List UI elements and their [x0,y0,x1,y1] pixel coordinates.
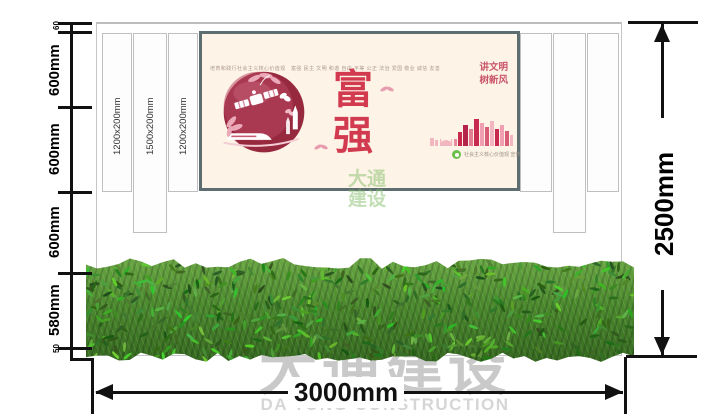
poster-caption: 社会主义核心价值观 宣传 [464,151,520,158]
panel-slat-left-3: 1200x200mm [168,33,198,192]
arrowhead-left-icon [95,384,113,400]
panel-slat-left-2: 1500x200mm [133,33,167,233]
leaf-decoration-icon [380,84,394,94]
dim-tick [58,191,92,194]
signage-wall-elevation-drawing: 1200x200mm 1500x200mm 1200x200mm 培育和践行社会… [0,0,720,420]
watermark-small-line1: 大通 [344,170,390,190]
panel-slat-right-2 [553,33,586,233]
dim-extension [91,358,94,414]
slogan-line-2: 树新风 [479,74,508,87]
dim-label-3000: 3000mm [288,377,404,408]
dim-tick [58,347,92,350]
slat-size-label: 1500x200mm [145,70,156,182]
dim-label-2500: 2500mm [649,118,680,290]
dim-label-50: 50 [52,342,61,356]
poster-side-slogan: 讲文明 树新风 [479,61,508,87]
dim-label-600-3: 600mm [46,195,63,270]
panel-slat-right-1 [520,33,552,192]
arrowhead-down-icon [654,337,670,355]
panel-slat-left-1: 1200x200mm [102,33,132,192]
watermark-small-line2: 建设 [344,190,390,210]
dim-extension [624,357,627,414]
dim-tick [58,106,92,109]
dim-tick [58,272,92,275]
hedge-photo [86,258,634,362]
watermark-small: 大通 建设 [344,170,390,210]
poster-board: 培育和践行社会主义核心价值观 富强 民主 文明 和谐 自由 平等 公正 法治 爱… [199,31,520,191]
slogan-line-1: 讲文明 [479,61,508,74]
dim-tick [58,31,92,34]
slat-size-label: 1200x200mm [112,70,123,182]
dim-label-600-1: 600mm [46,36,63,104]
poster-main-word: 富强 [328,68,370,180]
panel-slat-right-3 [587,33,619,192]
poster-caption-row: 社会主义核心价值观 宣传 [452,150,520,159]
leaf-decoration-icon [314,142,328,152]
city-skyline-illustration [430,112,514,146]
papercut-emblem-illustration [216,66,312,162]
slat-size-label: 1200x200mm [178,70,189,182]
dim-tick [58,22,92,25]
dim-label-580: 580mm [46,276,63,344]
dim-label-60: 60 [52,18,61,34]
civilization-logo-icon [452,150,461,159]
arrowhead-up-icon [654,24,670,42]
arrowhead-right-icon [605,384,623,400]
dim-label-600-2: 600mm [46,110,63,188]
